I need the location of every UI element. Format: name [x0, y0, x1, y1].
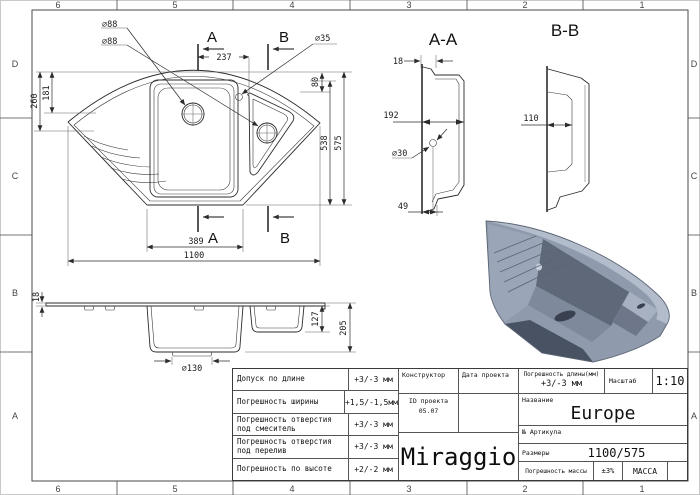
dim-label-drain-main: ⌀88: [102, 20, 117, 30]
project-id-row: ID проекта 05.07: [399, 394, 518, 433]
bb-profile-inner: [548, 92, 572, 172]
constructor-row: Конструктор Дата проекта: [399, 369, 518, 394]
length-tolerance-row: Погрешность длины(мм) +3/-3 мм Масштаб 1…: [519, 369, 687, 394]
section-label-a-bottom: A: [208, 230, 218, 247]
dim-label-538: 538: [320, 135, 330, 150]
small-basin-rim: [248, 93, 294, 175]
length-tolerance-label: Погрешность длины(мм): [519, 371, 604, 379]
sink-3d-render: [486, 221, 669, 362]
aa-tap-hole: [430, 140, 437, 147]
plan-extension-lines: [34, 58, 352, 266]
border-col-label: 3: [406, 0, 411, 10]
dim-label-389: 389: [188, 237, 203, 247]
aa-dim-49-arrow: [430, 210, 437, 215]
aa-profile-inner: [432, 79, 459, 202]
el-dim-label-127: 127: [311, 311, 321, 326]
border-col-label: 3: [406, 484, 411, 494]
aa-dim-192-arrow: [422, 119, 430, 124]
small-basin-floor: [253, 99, 288, 168]
length-tolerance-cell: Погрешность длины(мм) +3/-3 мм: [519, 369, 605, 393]
dim-label-237: 237: [216, 53, 231, 63]
border-col-label: 2: [522, 0, 527, 10]
bb-profile-outer: [548, 69, 589, 210]
section-label-b-top: B: [279, 29, 289, 46]
mass-tolerance-value: ±3%: [594, 462, 623, 480]
section-aa-title: A-A: [429, 30, 458, 49]
elevation-clips: [84, 306, 276, 310]
el-dim-label-130: ⌀130: [182, 364, 202, 374]
constructor-label: Конструктор: [399, 369, 459, 393]
tolerance-value: +2/-2 мм: [349, 459, 398, 480]
dim-label-181: 181: [42, 85, 52, 100]
mass-tolerance-label: Погрешность массы: [519, 462, 594, 480]
main-basin-rim: [150, 80, 238, 197]
border-row-label: A: [691, 411, 697, 421]
elevation-small-basin-inner: [254, 306, 300, 328]
aa-dim-label-192: 192: [383, 111, 398, 121]
project-date-label: Дата проекта: [459, 369, 518, 393]
dim-label-1100: 1100: [184, 251, 204, 261]
dim-label-80: 80: [311, 77, 321, 87]
project-date-value-cell: [459, 394, 518, 432]
size-value: 1100/575: [564, 446, 687, 460]
border-col-label: 4: [289, 484, 294, 494]
aa-dim-192-arrow: [456, 119, 464, 124]
tolerance-label: Погрешность по высоте: [233, 459, 349, 480]
name-row: Название Europe: [519, 394, 687, 426]
border-col-label: 6: [55, 484, 60, 494]
border-col-label: 5: [172, 484, 177, 494]
title-block-middle: Конструктор Дата проекта ID проекта 05.0…: [399, 369, 519, 480]
aa-hole-leader: [412, 147, 429, 158]
border-col-label: 4: [289, 0, 294, 10]
leader-line-drain-main: [127, 28, 185, 105]
mass-value-cell: [668, 462, 687, 480]
project-id-label: ID проекта: [409, 397, 448, 405]
drawing-sheet: 6 5 4 3 2 1 6 5 4 3 2 1 D C B A D C B A …: [0, 0, 700, 495]
bb-dim-110-arrow: [565, 123, 572, 128]
tolerance-table: Допуск по длине +3/-3 мм Погрешность шир…: [233, 369, 399, 480]
border-row-label: D: [12, 59, 19, 69]
border-col-label: 2: [522, 484, 527, 494]
mass-label: МАССА: [623, 462, 668, 480]
tolerance-row: Погрешность ширины +1,5/-1,5мм: [233, 391, 398, 413]
dim-label-drain-small: ⌀88: [102, 37, 117, 47]
name-label: Название: [522, 396, 553, 404]
border-col-label: 1: [639, 484, 644, 494]
scale-label: Масштаб: [605, 369, 653, 393]
aa-dim-label-49: 49: [398, 202, 408, 212]
project-id-cell: ID проекта 05.07: [399, 394, 459, 432]
bb-dim-110-arrow: [547, 123, 554, 128]
border-row-label: B: [691, 288, 697, 298]
dim-label-260: 260: [30, 93, 40, 108]
tolerance-row: Погрешность по высоте +2/-2 мм: [233, 459, 398, 480]
tolerance-row: Погрешность отверстия под смеситель +3/-…: [233, 414, 398, 436]
tolerance-label: Допуск по длине: [233, 369, 349, 390]
border-row-label: C: [691, 171, 698, 181]
el-dim-label-18: 18: [32, 292, 42, 302]
article-label: № Артикула: [522, 428, 561, 436]
aa-extension-lines: [421, 55, 437, 216]
tolerance-value: +3/-3 мм: [349, 369, 398, 390]
dim-label-575: 575: [334, 135, 344, 150]
border-col-label: 6: [55, 0, 60, 10]
tolerance-row: Допуск по длине +3/-3 мм: [233, 369, 398, 391]
border-col-label: 5: [172, 0, 177, 10]
scale-value: 1:10: [653, 369, 687, 393]
tolerance-label: Погрешность отверстия под смеситель: [233, 414, 349, 435]
leader-line-overflow: [242, 44, 313, 94]
tolerance-value: +3/-3 мм: [349, 436, 398, 457]
mass-row: Погрешность массы ±3% МАССА: [519, 462, 687, 480]
size-row: Размеры 1100/575: [519, 444, 687, 462]
section-label-a-top: A: [207, 29, 217, 46]
elevation-main-basin: [147, 306, 243, 352]
elevation-drain-stub: [172, 352, 212, 356]
dim-label-overflow: ⌀35: [315, 34, 330, 44]
length-tolerance-value: +3/-3 мм: [519, 379, 604, 390]
overflow-hole: [236, 94, 243, 101]
aa-dim-49-arrow: [422, 210, 429, 215]
logo-cell: Miraggio: [399, 433, 518, 480]
tolerance-label: Погрешность ширины: [233, 391, 345, 412]
aa-hole-leader: [437, 129, 447, 140]
plan-outline-inner: [74, 76, 314, 201]
elevation-main-basin-inner: [151, 306, 239, 348]
aa-profile-outer: [423, 67, 464, 212]
tolerance-row: Погрешность отверстия под перелив +3/-3 …: [233, 436, 398, 458]
border-row-label: B: [12, 288, 18, 298]
aa-dim-label-30: ⌀30: [392, 149, 407, 159]
title-block: Допуск по длине +3/-3 мм Погрешность шир…: [232, 368, 688, 481]
elevation-rim: [46, 303, 325, 309]
plan-outline: [68, 70, 320, 205]
title-block-right: Погрешность длины(мм) +3/-3 мм Масштаб 1…: [519, 369, 687, 480]
aa-dim-label-18: 18: [393, 57, 403, 67]
border-row-label: C: [12, 171, 19, 181]
tolerance-value: +3/-3 мм: [349, 414, 398, 435]
border-row-label: A: [12, 411, 18, 421]
section-bb-title: B-B: [551, 21, 579, 40]
border-col-label: 1: [639, 0, 644, 10]
bb-dim-label-110: 110: [523, 114, 538, 124]
border-row-label: D: [691, 59, 698, 69]
main-basin-rim: [154, 84, 234, 194]
section-label-b-bottom: B: [280, 230, 290, 247]
el-dim-label-205: 205: [339, 320, 349, 335]
article-row: № Артикула: [519, 426, 687, 444]
tolerance-value: +1,5/-1,5мм: [345, 391, 398, 412]
project-id-value: 05.07: [419, 407, 439, 415]
leader-underline: [101, 28, 412, 158]
tolerance-label: Погрешность отверстия под перелив: [233, 436, 349, 457]
size-label: Размеры: [519, 449, 564, 457]
brand-logo: Miraggio: [401, 443, 517, 471]
